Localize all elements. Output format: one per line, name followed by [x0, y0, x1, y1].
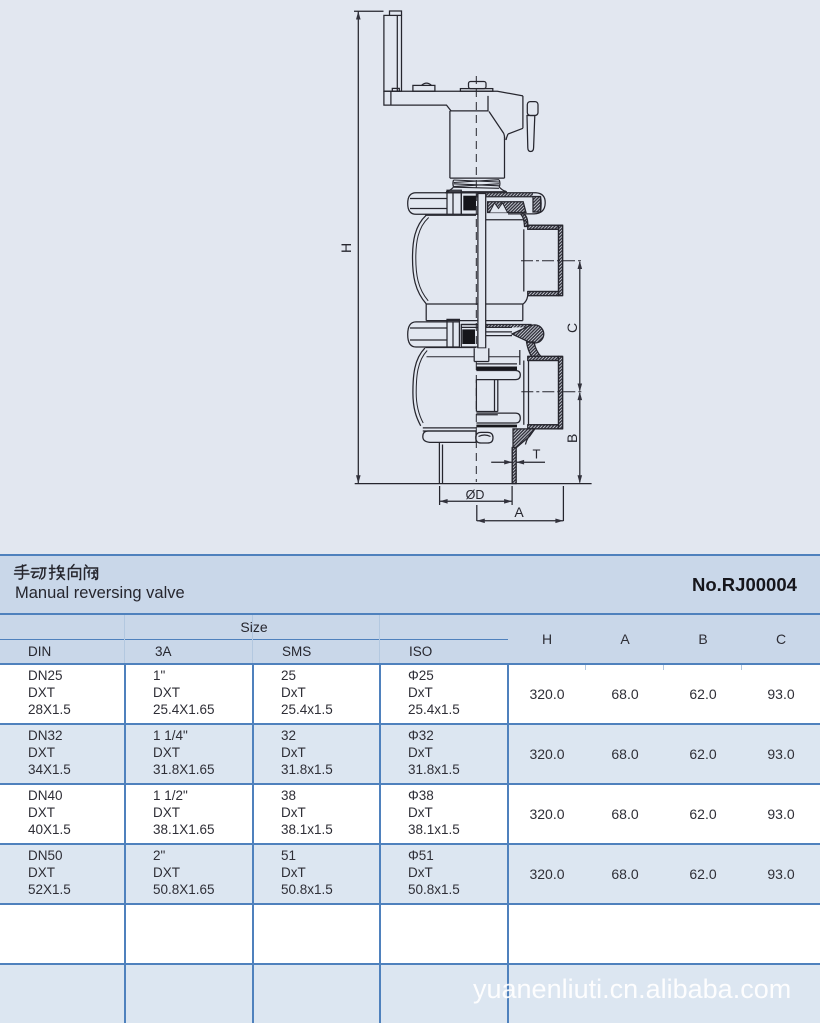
svg-text:H: H — [338, 243, 354, 253]
svg-text:C: C — [564, 323, 580, 333]
svg-text:ØD: ØD — [466, 488, 485, 502]
svg-text:T: T — [533, 447, 541, 462]
svg-text:B: B — [564, 434, 580, 443]
svg-text:A: A — [514, 504, 524, 520]
